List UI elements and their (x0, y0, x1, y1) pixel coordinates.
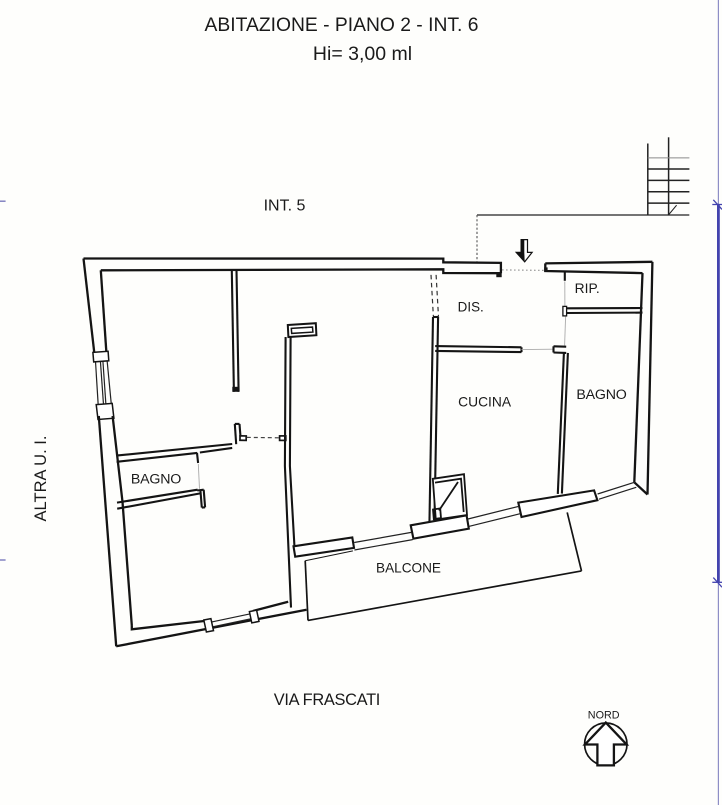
svg-text:BAGNO: BAGNO (131, 472, 181, 488)
svg-text:ABITAZIONE - PIANO 2 - INT. 6: ABITAZIONE - PIANO 2 - INT. 6 (205, 15, 479, 36)
svg-text:ALTRA U. I.: ALTRA U. I. (32, 436, 50, 522)
svg-text:NORD: NORD (588, 709, 620, 721)
svg-text:BALCONE: BALCONE (376, 561, 441, 576)
svg-text:INT. 5: INT. 5 (264, 198, 306, 215)
svg-text:RIP.: RIP. (575, 281, 600, 296)
svg-text:CUCINA: CUCINA (458, 395, 512, 410)
svg-text:Hi= 3,00 ml: Hi= 3,00 ml (313, 43, 412, 65)
svg-text:DIS.: DIS. (458, 300, 484, 315)
svg-text:VIA FRASCATI: VIA FRASCATI (274, 691, 380, 709)
svg-text:BAGNO: BAGNO (576, 387, 626, 403)
